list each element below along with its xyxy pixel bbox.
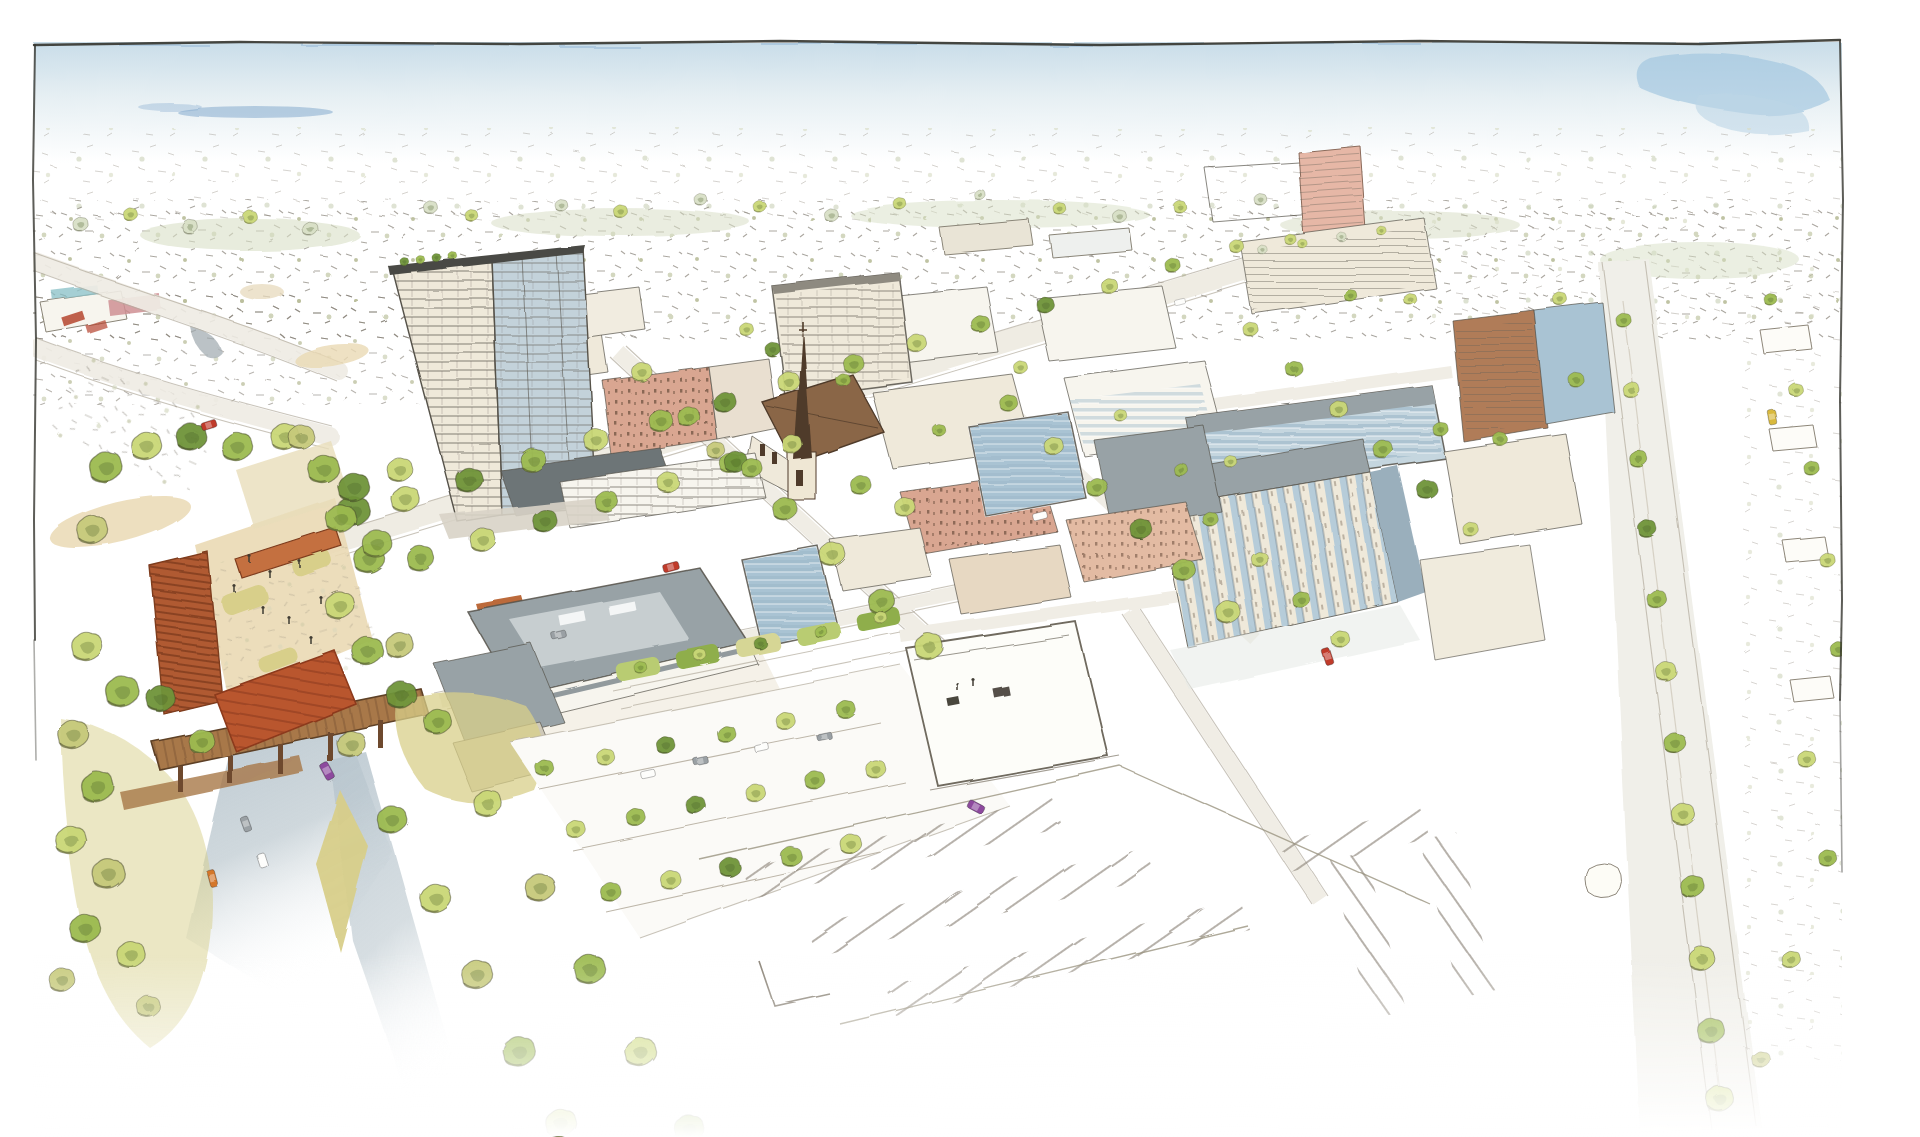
bottom-fade	[0, 955, 1920, 1137]
office-block	[1420, 545, 1545, 660]
parking-island	[1585, 863, 1622, 898]
glass-tower	[1534, 302, 1614, 424]
watercolor-aerial-rendering	[0, 0, 1920, 1137]
rendering-svg	[0, 0, 1920, 1137]
artwork	[0, 42, 1920, 1137]
office-block	[1036, 286, 1176, 362]
existing-neighborhood	[1742, 250, 1842, 1060]
